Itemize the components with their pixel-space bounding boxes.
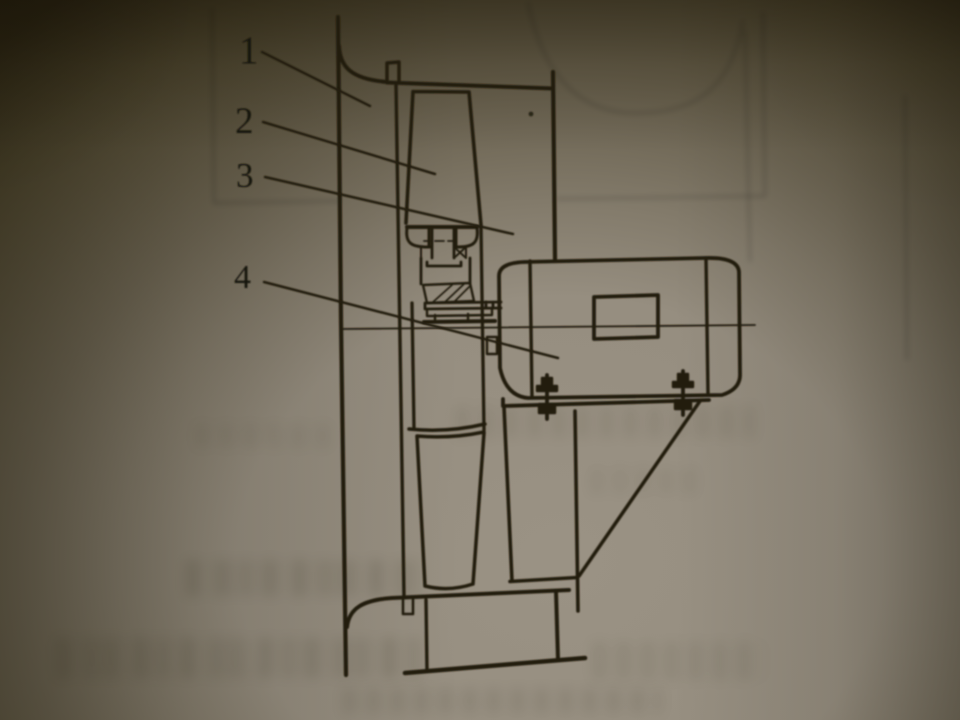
svg-text:2: 2 [235,101,254,142]
svg-text:1: 1 [239,29,259,72]
svg-text:4: 4 [234,259,251,296]
svg-text:3: 3 [236,156,254,195]
